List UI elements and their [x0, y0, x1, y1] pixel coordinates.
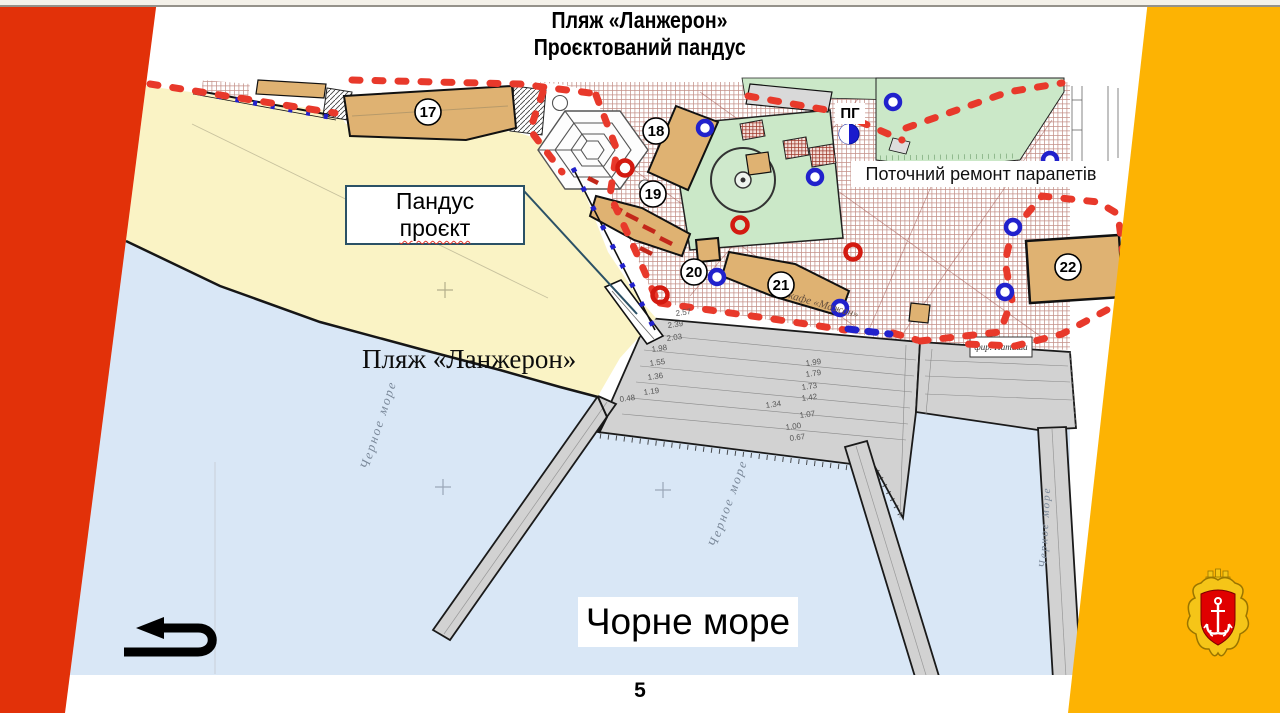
hydrant-label: ПГ	[835, 103, 865, 124]
slide-title-line1: Пляж «Ланжерон»	[552, 7, 728, 34]
svg-text:17: 17	[420, 104, 437, 121]
parapet-repair-note: Поточний ремонт парапетів	[851, 161, 1111, 187]
garden-kiosk	[746, 152, 771, 175]
odesa-coat-of-arms	[1183, 568, 1253, 668]
ramp-callout-line1: Пандус	[396, 188, 474, 215]
slide-title: Пляж «Ланжерон» Проєктований пандус	[0, 7, 1280, 61]
badge-17: 17	[415, 99, 441, 125]
building-21-kiosk	[909, 303, 930, 323]
hydrant-marker	[839, 124, 859, 144]
svg-text:22: 22	[1060, 259, 1077, 276]
beach-name-label: Пляж «Ланжерон»	[362, 344, 576, 375]
badge-22: 22	[1055, 254, 1081, 280]
slide-title-line2: Проєктований пандус	[534, 34, 746, 61]
page-number: 5	[0, 679, 1280, 703]
ramp-project-callout: Пандус проєкт	[345, 185, 525, 245]
svg-text:20: 20	[686, 264, 703, 281]
badge-18: 18	[643, 118, 669, 144]
sea-name-label: Чорне море	[578, 597, 798, 647]
ramp-callout-line2: проєкт	[400, 215, 471, 242]
slide: фир. Наташа Черное море Черное море Черн…	[0, 0, 1280, 713]
svg-text:18: 18	[648, 123, 665, 140]
building-20	[696, 238, 720, 262]
badge-19: 19	[640, 181, 666, 207]
svg-text:19: 19	[645, 186, 662, 203]
badge-20: 20	[681, 259, 707, 285]
top-divider-line	[0, 0, 1280, 7]
svg-text:21: 21	[773, 277, 790, 294]
